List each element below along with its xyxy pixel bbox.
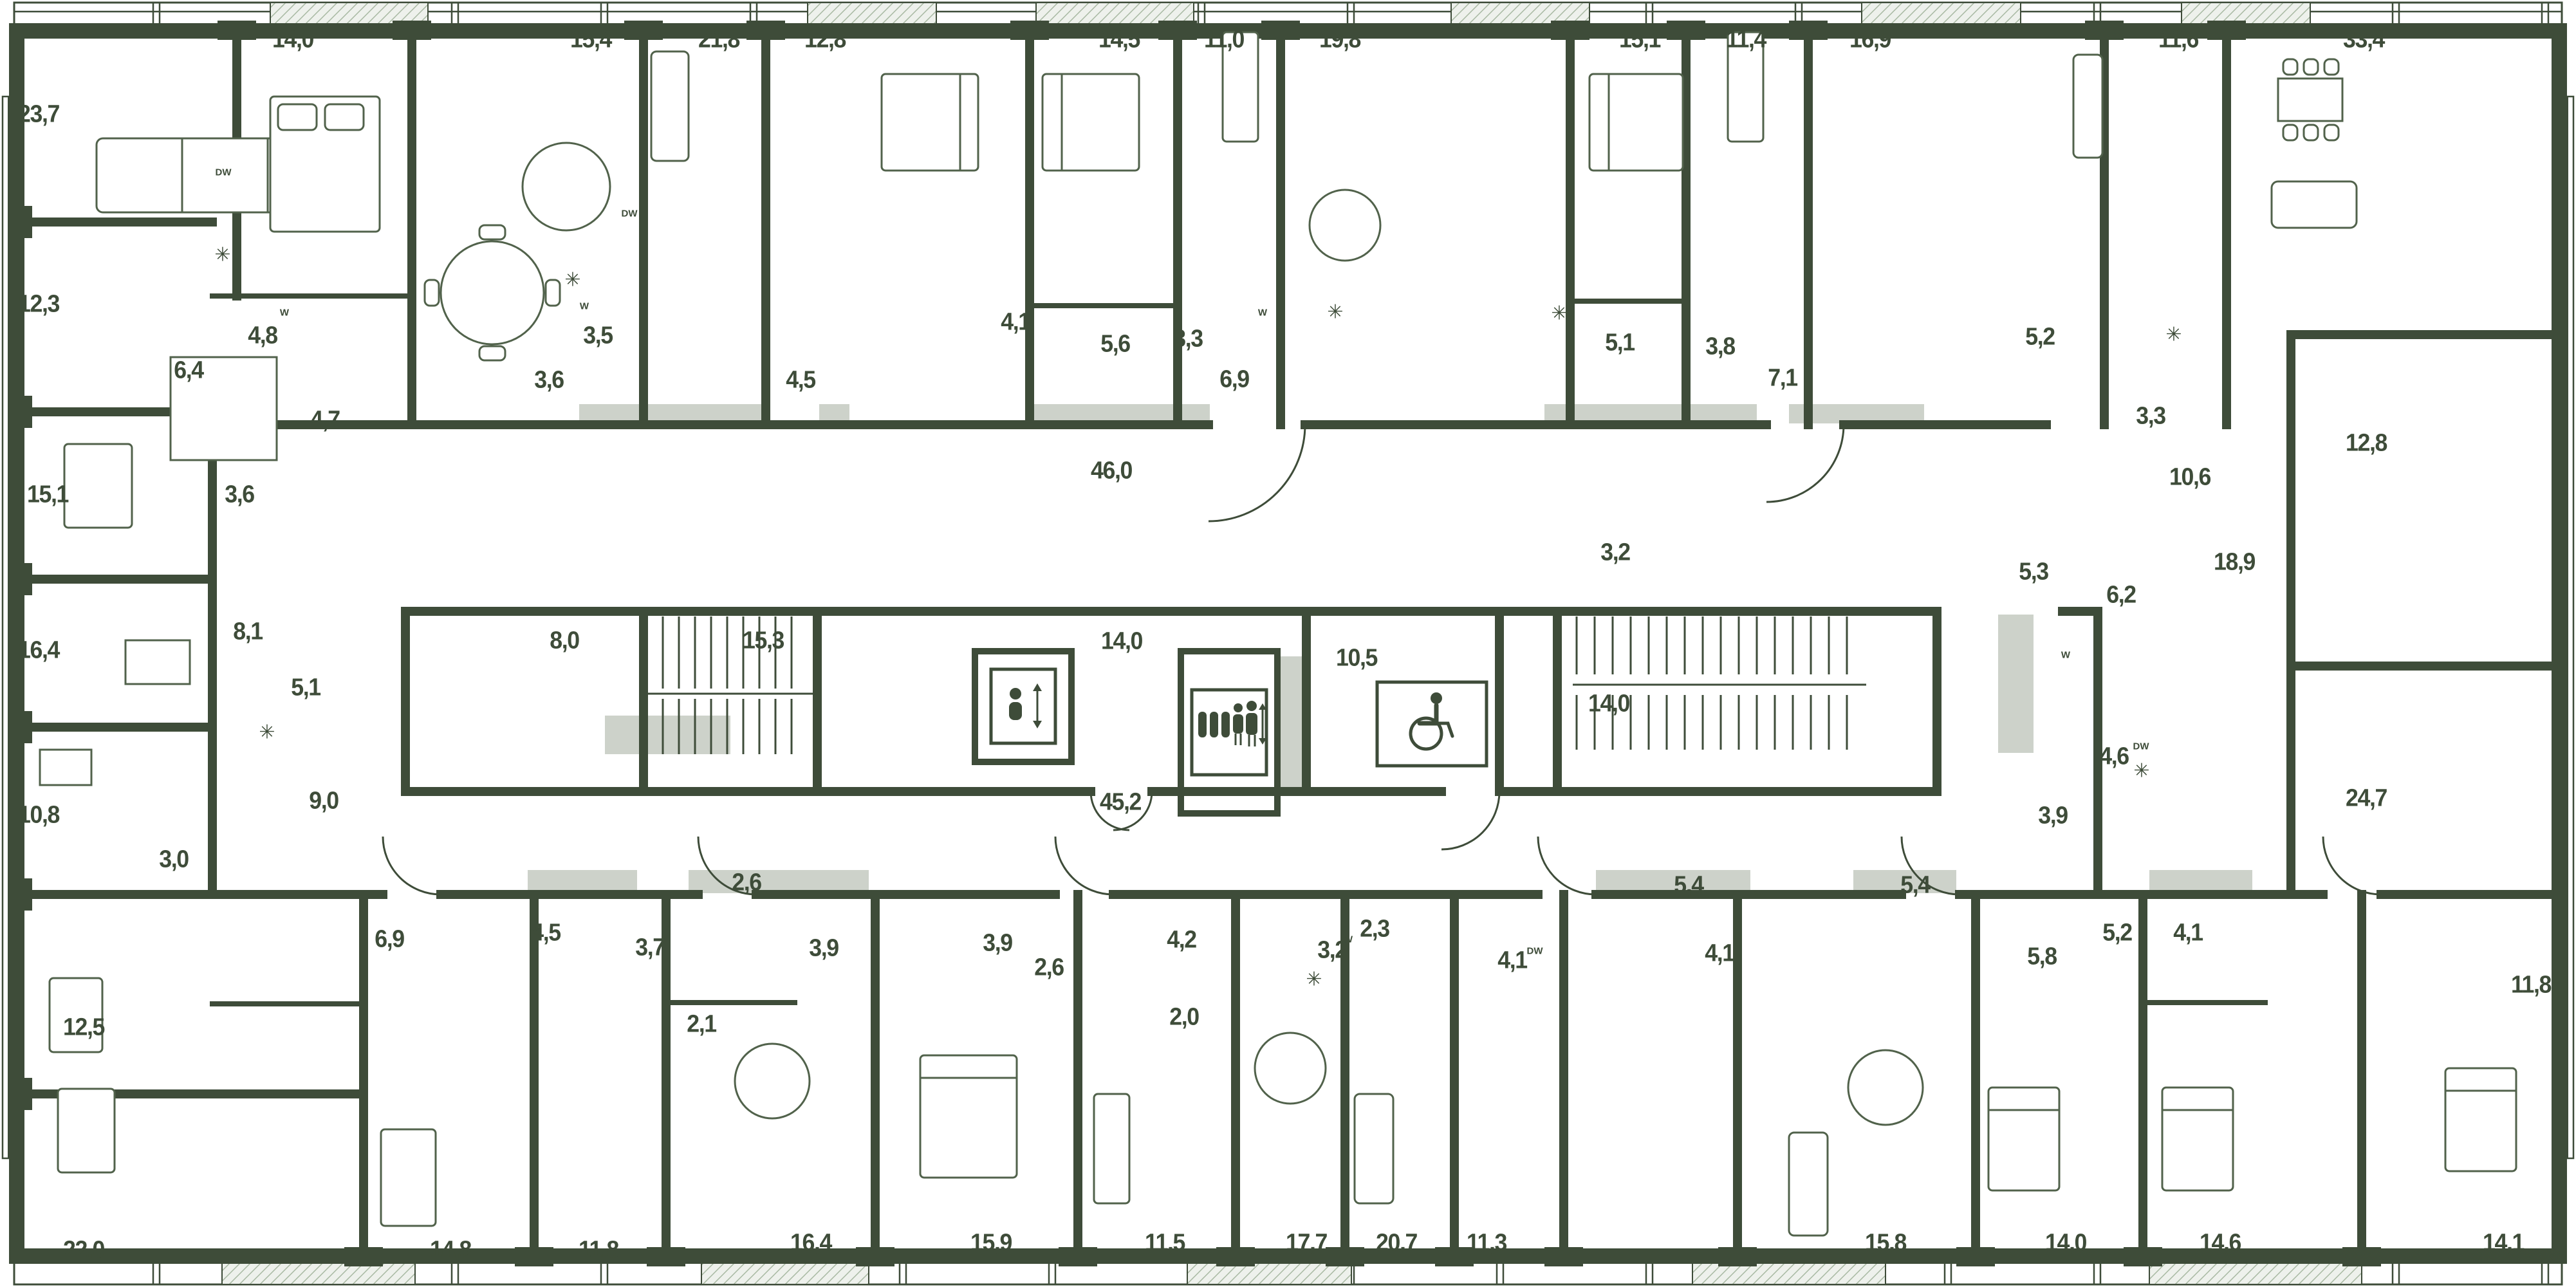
dining-table-icon	[2278, 59, 2342, 140]
dining-table-icon	[1848, 1050, 1923, 1125]
bed-icon	[270, 97, 380, 232]
coffee-table-icon	[171, 357, 277, 460]
bed-icon	[2162, 1088, 2233, 1190]
bed-icon	[1094, 1094, 1129, 1203]
dining-table-icon	[523, 143, 610, 230]
dining-table-icon	[1310, 190, 1380, 261]
bed-icon	[381, 1129, 436, 1226]
dining-table-icon	[425, 225, 560, 360]
bed-icon	[2445, 1068, 2516, 1171]
bed-icon	[1223, 32, 1258, 142]
elevator-service-icon	[1009, 683, 1042, 728]
bed-icon	[1042, 74, 1139, 171]
bed-icon	[58, 1089, 115, 1172]
staircase-icon	[1573, 616, 1866, 750]
sofa-icon	[2272, 181, 2357, 228]
desk-icon	[40, 750, 91, 785]
window-band-bottom	[14, 1263, 2562, 1284]
sofa-icon	[651, 51, 689, 161]
shaft-fills	[528, 404, 2252, 893]
bed-icon	[64, 444, 132, 528]
sofa-icon	[1789, 1133, 1828, 1236]
sofa-icon	[2073, 55, 2102, 158]
bed-icon	[882, 74, 978, 171]
bed-icon	[50, 978, 102, 1052]
dining-table-icon	[735, 1044, 810, 1118]
bed-icon	[1988, 1088, 2059, 1190]
wheelchair-accessibility-icon	[1377, 682, 1487, 766]
sofa-icon	[1355, 1094, 1393, 1203]
dining-table-icon	[1255, 1033, 1326, 1104]
floor-plan-canvas: 23,714,015,421,812,814,511,019,815,111,4…	[0, 0, 2576, 1287]
bed-icon	[1589, 74, 1683, 171]
door-arcs	[383, 425, 2381, 894]
dining-table-icon	[125, 640, 190, 684]
floor-plan-drawing	[0, 0, 2576, 1287]
elevator-passenger-icon	[1198, 701, 1266, 746]
bed-icon	[920, 1055, 1017, 1178]
bed-icon	[1728, 32, 1763, 142]
